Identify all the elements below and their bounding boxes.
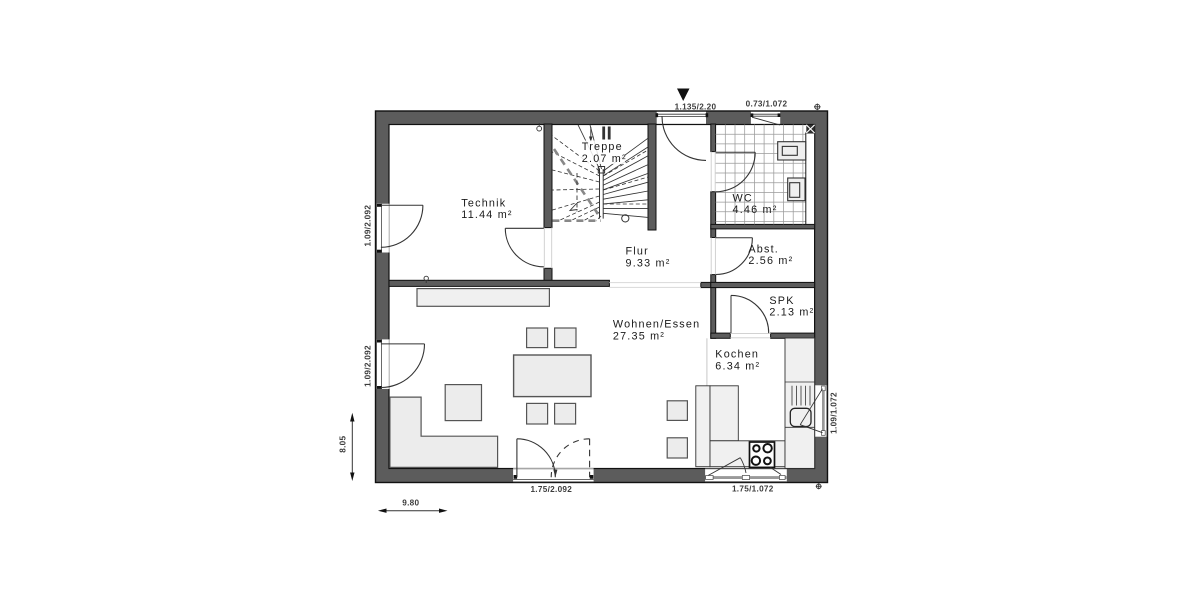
svg-text:WC: WC [733,192,753,204]
svg-text:1.09/2.092: 1.09/2.092 [363,345,372,387]
svg-text:9.33 m²: 9.33 m² [626,257,671,269]
svg-text:27.35 m²: 27.35 m² [613,330,665,342]
svg-text:Abst.: Abst. [748,243,779,255]
svg-text:2.13 m²: 2.13 m² [769,307,814,319]
svg-text:8.05: 8.05 [339,435,348,452]
svg-text:0.73/1.072: 0.73/1.072 [746,100,788,109]
svg-text:4.46 m²: 4.46 m² [733,204,778,216]
svg-text:Treppe: Treppe [582,141,623,153]
svg-text:1.09/2.092: 1.09/2.092 [363,205,372,247]
svg-text:Wohnen/Essen: Wohnen/Essen [613,319,700,331]
svg-text:11.44 m²: 11.44 m² [461,209,512,221]
svg-text:1.09/1.072: 1.09/1.072 [830,392,839,434]
svg-text:1.75/2.092: 1.75/2.092 [530,485,572,494]
svg-text:Technik: Technik [461,197,506,209]
svg-text:9.80: 9.80 [402,498,419,507]
svg-text:Kochen: Kochen [715,349,759,361]
svg-text:6.34 m²: 6.34 m² [715,360,760,372]
svg-text:2.07 m²: 2.07 m² [582,153,627,165]
svg-text:1.135/2.20: 1.135/2.20 [675,102,717,111]
svg-text:1.75/1.072: 1.75/1.072 [732,484,774,493]
svg-text:Flur: Flur [626,246,649,258]
svg-text:SPK: SPK [769,295,794,307]
svg-text:2.56 m²: 2.56 m² [748,255,793,267]
